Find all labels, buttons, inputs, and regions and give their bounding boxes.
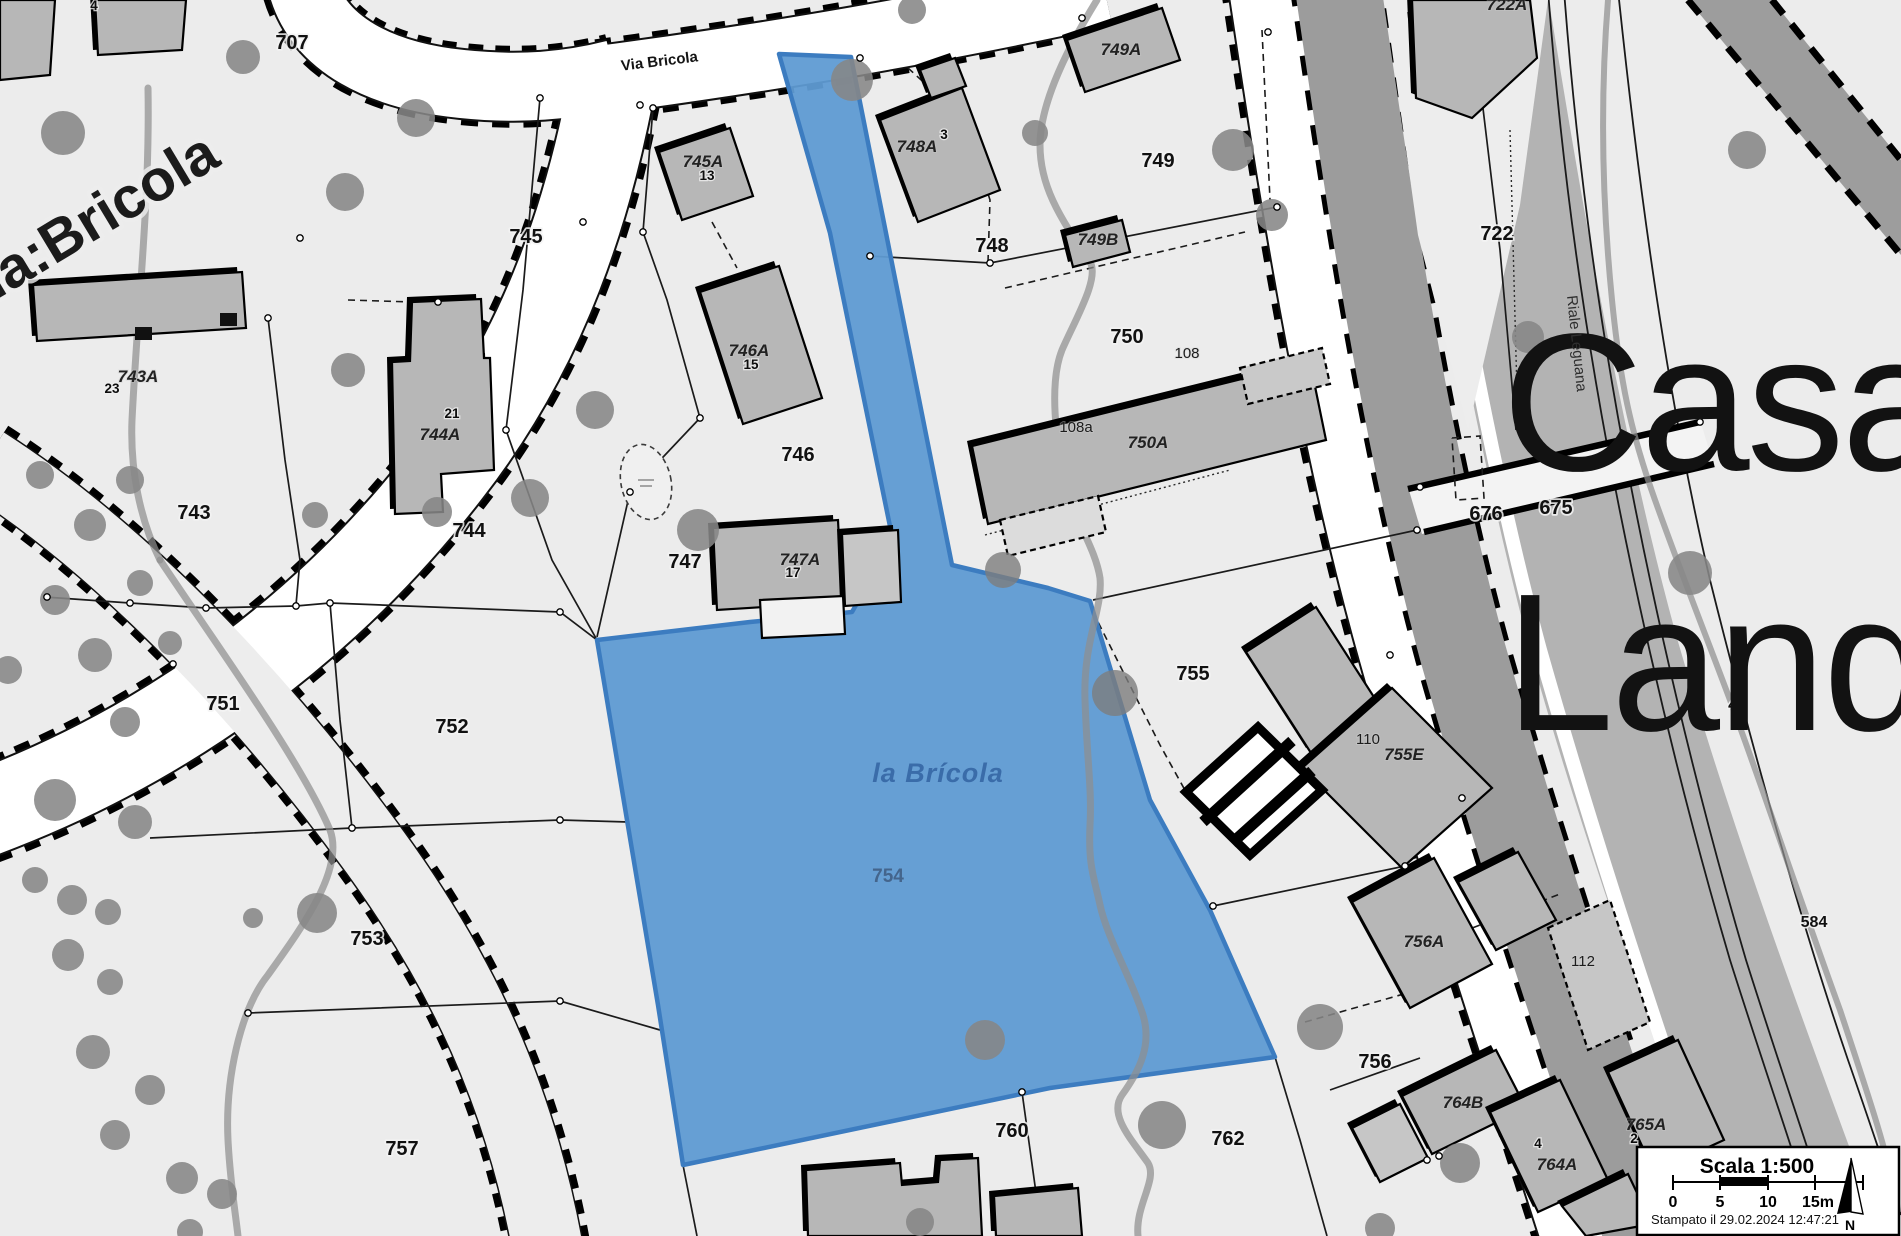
scale-tick-5: 5 (1716, 1194, 1725, 1211)
building-edge-a (0, 0, 55, 80)
tree-symbol (97, 969, 123, 995)
boundary-vertex (1424, 1157, 1430, 1163)
tree-symbol (52, 939, 84, 971)
boundary-vertex (44, 594, 50, 600)
label-752: 752 (435, 716, 468, 738)
label-748a: 748A (897, 137, 938, 156)
scale-box: Scala 1:500 0 5 10 15m Stampato il 29.02… (1637, 1147, 1899, 1235)
scale-tick-0: 0 (1669, 1194, 1678, 1211)
tree-symbol (116, 466, 144, 494)
tree-symbol (34, 779, 76, 821)
tree-symbol (1728, 131, 1766, 169)
label-15: 15 (743, 357, 759, 372)
label-760: 760 (995, 1120, 1028, 1142)
label-23: 23 (104, 381, 120, 396)
boundary-vertex (297, 235, 303, 241)
tree-symbol (226, 40, 260, 74)
boundary-vertex (1402, 863, 1408, 869)
boundary-vertex (557, 998, 563, 1004)
tree-symbol (331, 353, 365, 387)
label-722: 722 (1480, 223, 1513, 245)
tree-symbol (118, 805, 152, 839)
tree-symbol (1092, 670, 1138, 716)
boundary-vertex (1436, 1153, 1442, 1159)
tree-symbol (576, 391, 614, 429)
label-750: 750 (1110, 326, 1143, 348)
tree-symbol (57, 885, 87, 915)
label-584: 584 (1801, 914, 1828, 931)
boundary-vertex (580, 219, 586, 225)
north-label: N (1845, 1217, 1855, 1233)
cadastral-map-canvas[interactable]: 7077457467477487497507517527537557567577… (0, 0, 1901, 1236)
boundary-vertex (1265, 29, 1271, 35)
boundary-vertex (265, 315, 271, 321)
label-707: 707 (275, 32, 308, 54)
label-13: 13 (699, 168, 715, 183)
label-756a: 756A (1404, 932, 1445, 951)
boundary-vertex (557, 817, 563, 823)
label-17: 17 (785, 565, 800, 580)
label-2: 2 (1630, 1131, 1638, 1146)
boundary-vertex (1387, 652, 1393, 658)
label-108: 108 (1174, 345, 1199, 362)
label-749b: 749B (1078, 230, 1119, 249)
tree-symbol (985, 552, 1021, 588)
boundary-vertex (867, 253, 873, 259)
building-747A-right (842, 530, 901, 606)
tree-symbol (95, 899, 121, 925)
print-stamp: Stampato il 29.02.2024 12:47:21 (1651, 1212, 1839, 1227)
tree-symbol (297, 893, 337, 933)
boundary-vertex (1079, 15, 1085, 21)
tree-symbol (40, 585, 70, 615)
tree-symbol (1256, 199, 1288, 231)
building-760-b (994, 1188, 1082, 1236)
label-748: 748 (975, 235, 1008, 257)
tree-symbol (78, 638, 112, 672)
boundary-vertex (293, 603, 299, 609)
label-108a: 108a (1059, 419, 1093, 436)
tree-symbol (100, 1120, 130, 1150)
label-la-brícola: la Brícola (872, 758, 1004, 788)
label-4: 4 (90, 0, 98, 13)
boundary-vertex (1274, 204, 1280, 210)
boundary-vertex (203, 605, 209, 611)
tree-symbol (110, 707, 140, 737)
label-745: 745 (509, 226, 542, 248)
tree-symbol (135, 1075, 165, 1105)
tree-symbol (1297, 1004, 1343, 1050)
label-756: 756 (1358, 1051, 1391, 1073)
tree-symbol (397, 99, 435, 137)
label-3: 3 (940, 127, 948, 142)
label-743a: 743A (118, 367, 159, 386)
tree-symbol (166, 1162, 198, 1194)
tree-symbol (906, 1208, 934, 1236)
tree-symbol (1212, 129, 1254, 171)
label-762: 762 (1211, 1128, 1244, 1150)
label-land: Land (1505, 553, 1901, 772)
label-casa: Casa (1502, 293, 1901, 512)
tree-symbol (22, 867, 48, 893)
boundary-vertex (435, 299, 441, 305)
scale-tick-10: 10 (1759, 1194, 1777, 1211)
tree-symbol (302, 502, 328, 528)
tree-symbol (74, 509, 106, 541)
tree-symbol (76, 1035, 110, 1069)
label-744a: 744A (420, 425, 461, 444)
label-764a: 764A (1537, 1155, 1578, 1174)
label-747: 747 (668, 551, 701, 573)
scale-title: Scala 1:500 (1700, 1155, 1814, 1178)
label-757: 757 (385, 1138, 418, 1160)
boundary-vertex (1459, 795, 1465, 801)
tree-symbol (127, 570, 153, 596)
building-747A-court (760, 596, 845, 638)
tree-symbol (1440, 1143, 1480, 1183)
label-21: 21 (444, 406, 460, 421)
label-755e: 755E (1384, 745, 1424, 764)
scale-bar-fill (1720, 1177, 1768, 1186)
boundary-vertex (627, 489, 633, 495)
boundary-vertex (1414, 527, 1420, 533)
map-viewport: 7077457467477487497507517527537557567577… (0, 0, 1901, 1236)
boundary-vertex (349, 825, 355, 831)
label-750a: 750A (1128, 433, 1169, 452)
label-751: 751 (206, 693, 239, 715)
tree-symbol (243, 908, 263, 928)
building-edge-b (95, 0, 186, 55)
boundary-vertex (127, 600, 133, 606)
boundary-vertex (987, 260, 993, 266)
tree-symbol (965, 1020, 1005, 1060)
boundary-vertex (857, 55, 863, 61)
building-760-a (806, 1158, 982, 1236)
label-4: 4 (1534, 1136, 1542, 1151)
label-754: 754 (872, 866, 904, 887)
boundary-vertex (1417, 484, 1423, 490)
tree-symbol (677, 509, 719, 551)
boundary-vertex (503, 427, 509, 433)
tree-symbol (1022, 120, 1048, 146)
label-743: 743 (177, 502, 210, 524)
label-722a: 722A (1487, 0, 1528, 14)
boundary-vertex (537, 95, 543, 101)
tree-symbol (207, 1179, 237, 1209)
label-753: 753 (350, 928, 383, 950)
boundary-vertex (170, 661, 176, 667)
boundary-vertex (557, 609, 563, 615)
boundary-vertex (1019, 1089, 1025, 1095)
tree-symbol (41, 111, 85, 155)
boundary-vertex (697, 415, 703, 421)
boundary-vertex (637, 102, 643, 108)
label-110: 110 (1356, 731, 1380, 748)
tree-symbol (511, 479, 549, 517)
boundary-vertex (327, 600, 333, 606)
tree-symbol (422, 497, 452, 527)
boundary-vertex (640, 229, 646, 235)
label-112: 112 (1571, 953, 1595, 970)
tree-symbol (1138, 1101, 1186, 1149)
label-676: 676 (1469, 503, 1502, 525)
tree-symbol (26, 461, 54, 489)
boundary-vertex (650, 105, 656, 111)
label-749: 749 (1141, 150, 1174, 172)
label-746: 746 (781, 444, 814, 466)
scale-tick-15: 15m (1802, 1194, 1834, 1211)
tree-symbol (326, 173, 364, 211)
label-744: 744 (452, 520, 486, 542)
tree-symbol (831, 59, 873, 101)
label-764b: 764B (1443, 1093, 1484, 1112)
label-755: 755 (1176, 663, 1209, 685)
boundary-vertex (1210, 903, 1216, 909)
tree-symbol (158, 631, 182, 655)
boundary-vertex (245, 1010, 251, 1016)
label-749a: 749A (1101, 40, 1142, 59)
